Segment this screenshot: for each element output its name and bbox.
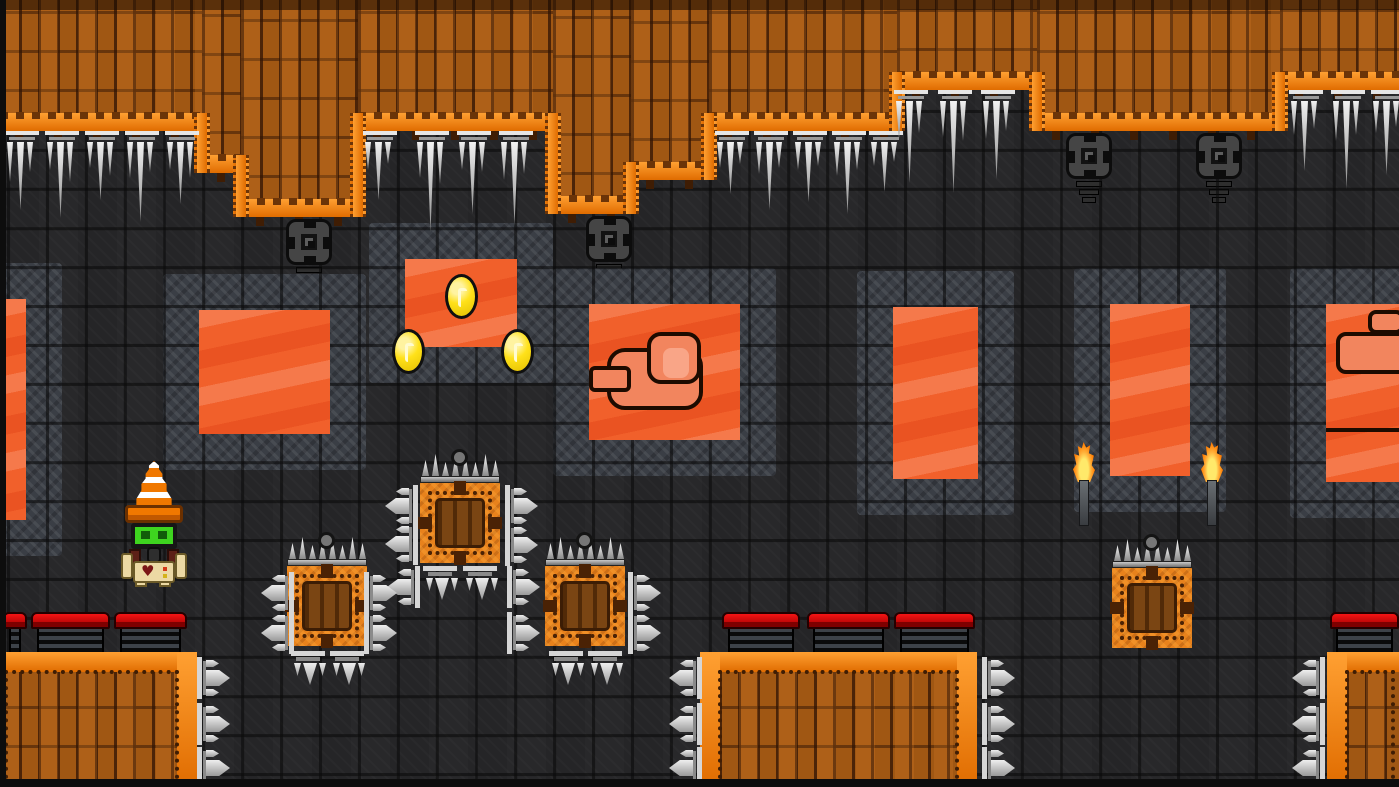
- ceiling-dirt-segment: [897, 0, 1037, 90]
- icicle-rail: [836, 137, 862, 140]
- spike: [319, 663, 326, 676]
- crusher-bellows: [9, 629, 21, 652]
- spike-crown: [545, 531, 625, 566]
- turret-notch: [588, 234, 595, 246]
- lava-rock-highlight: [663, 348, 689, 378]
- lava-window: [199, 310, 330, 434]
- spike-block-stub: [1110, 602, 1124, 614]
- spike: [206, 735, 219, 742]
- crusher-cap: [3, 612, 27, 629]
- spike: [385, 536, 409, 552]
- icicle: [107, 142, 113, 176]
- dirt-platform: [700, 652, 977, 787]
- crusher-cap: [807, 612, 890, 629]
- spike: [1184, 545, 1191, 561]
- spike: [991, 760, 1015, 776]
- icicle: [469, 142, 476, 214]
- spike-crown: [420, 448, 500, 483]
- spike: [482, 454, 489, 476]
- turret-notch: [604, 253, 616, 260]
- icicle-cluster: [893, 90, 931, 184]
- spike-rail: [982, 703, 987, 745]
- spike: [1303, 706, 1316, 713]
- icicle-cluster: [498, 131, 536, 227]
- turret-notch: [604, 218, 616, 225]
- spike-block-stub: [418, 517, 432, 529]
- icicle: [815, 142, 821, 166]
- down-spike-launcher: [289, 651, 329, 689]
- player-cone-hat: [133, 461, 175, 507]
- icicle-cluster: [124, 131, 162, 223]
- ceiling-lava-trim: [1037, 113, 1280, 131]
- lava-rock-blob: [1368, 310, 1399, 334]
- icicle: [1311, 101, 1317, 129]
- icicle: [459, 142, 465, 170]
- icicle-cluster: [84, 131, 122, 201]
- spike: [637, 575, 650, 582]
- icicle-rail: [461, 137, 487, 140]
- spike: [680, 689, 693, 696]
- lava-rock-blob: [647, 332, 701, 384]
- ceiling-dirt-segment: [241, 0, 358, 217]
- lava-rock-blob: [1336, 332, 1399, 374]
- spike-block-stub: [1146, 636, 1158, 650]
- spike: [669, 670, 693, 686]
- turret-eye: [1088, 155, 1095, 162]
- spike: [206, 689, 219, 696]
- spike: [398, 598, 411, 605]
- spike: [680, 750, 693, 757]
- icicle-rail: [367, 137, 393, 140]
- spike-block-stub: [321, 564, 333, 578]
- spike-block-stub: [579, 564, 591, 578]
- wall-spike-launcher: [260, 610, 294, 656]
- icicle: [1383, 101, 1390, 175]
- spike: [1164, 547, 1171, 561]
- turret-notch: [1084, 170, 1096, 177]
- icicle: [375, 142, 382, 200]
- icicle-rail: [165, 131, 199, 135]
- spike-rail: [370, 576, 373, 610]
- piston-crusher: [807, 612, 890, 652]
- spike: [272, 644, 285, 651]
- coin[interactable]: [392, 329, 425, 374]
- crusher-bellows: [1336, 629, 1393, 652]
- spike: [1292, 716, 1316, 732]
- spike-rail: [468, 572, 492, 576]
- ceiling-lava-trim: [241, 199, 358, 217]
- player-arm: [121, 553, 133, 579]
- dirt-core-border: [718, 670, 959, 787]
- wall-spike-launcher: [507, 610, 541, 656]
- spike-rail: [628, 572, 633, 614]
- crusher-bellows: [37, 629, 104, 652]
- icicle: [87, 142, 93, 168]
- spike: [206, 706, 219, 713]
- spike-block-crate: [302, 581, 352, 631]
- icicle-rail: [1335, 96, 1361, 99]
- spike-rail: [593, 657, 617, 661]
- spike-crown: [1112, 533, 1192, 568]
- spike: [991, 660, 1004, 667]
- spike: [396, 488, 409, 495]
- crusher-cap: [894, 612, 975, 629]
- icicle: [896, 101, 902, 139]
- spike-rail: [364, 612, 369, 654]
- icicle-rail: [129, 137, 155, 140]
- spike-rail: [549, 651, 583, 656]
- icicle-cluster: [456, 131, 494, 215]
- coin-slot-mark: [405, 343, 414, 362]
- spike: [516, 625, 540, 641]
- spike-rail: [289, 572, 294, 614]
- spike: [991, 750, 1004, 757]
- spike: [432, 454, 439, 476]
- spike: [991, 689, 1004, 696]
- icicle: [511, 142, 518, 226]
- spike-block-stub: [454, 551, 466, 565]
- icicle-rail: [938, 90, 972, 94]
- icicle: [1003, 101, 1009, 131]
- icicle: [795, 142, 801, 170]
- spike: [373, 585, 397, 601]
- spike-block: [1112, 568, 1192, 648]
- turret-body: [586, 216, 632, 262]
- spike-rail: [1320, 657, 1325, 699]
- player-character[interactable]: ♥: [121, 461, 187, 587]
- piston-crusher: [31, 612, 110, 652]
- spike-block: [545, 566, 625, 646]
- icicle-rail: [832, 131, 866, 135]
- spike-rail: [513, 570, 516, 604]
- spike: [561, 663, 575, 685]
- piston-crusher: [1330, 612, 1399, 652]
- spike: [1303, 689, 1316, 696]
- spike-rail: [1320, 703, 1325, 745]
- piston-crusher: [722, 612, 800, 652]
- icicle: [834, 142, 840, 176]
- spike: [373, 644, 386, 651]
- down-spike-launcher: [328, 651, 368, 689]
- spike: [680, 735, 693, 742]
- piston-crusher: [114, 612, 187, 652]
- spike: [342, 663, 356, 685]
- spike: [396, 555, 409, 562]
- spike: [600, 663, 614, 685]
- lava-window: [589, 304, 740, 440]
- spike: [516, 579, 540, 595]
- spike-rail: [413, 523, 418, 565]
- spike: [442, 462, 449, 476]
- spike: [299, 537, 306, 559]
- ceiling-dirt-segment: [631, 0, 709, 180]
- turret-body: [1066, 133, 1112, 179]
- spike: [591, 663, 598, 676]
- lava-window: [893, 307, 978, 479]
- dirt-lava-trim-left: [700, 652, 720, 787]
- ceiling-lava-trim: [553, 196, 631, 214]
- icicle-cluster: [937, 90, 975, 194]
- spike: [1174, 539, 1181, 561]
- spike: [637, 625, 661, 641]
- spike-block-stub: [543, 600, 557, 612]
- wall-spike-launcher: [982, 655, 1016, 701]
- icicle: [737, 142, 743, 164]
- icicle-rail: [1289, 90, 1323, 94]
- spike-rail: [697, 703, 702, 745]
- icicle: [805, 142, 812, 202]
- turret-barrel-segment: [1079, 189, 1099, 195]
- spike: [206, 760, 230, 776]
- coin[interactable]: [501, 329, 534, 374]
- turret-notch: [1103, 151, 1110, 163]
- spike-rail: [511, 489, 514, 523]
- top-edge-shade: [0, 0, 1399, 10]
- spike: [514, 488, 527, 495]
- icicle: [756, 142, 762, 174]
- spike-rail: [588, 651, 622, 656]
- spike-rail: [554, 657, 578, 661]
- player-foot: [135, 581, 147, 587]
- lava-rock-blob: [589, 366, 631, 392]
- icicle: [67, 142, 73, 182]
- spike-rail: [634, 576, 637, 610]
- ceiling-lava-step: [623, 162, 639, 214]
- turret-notch: [304, 256, 316, 263]
- icicle-rail: [942, 96, 968, 99]
- turret-body: [1196, 133, 1242, 179]
- turret-notch: [1068, 151, 1075, 163]
- icicle-rail: [1371, 90, 1399, 94]
- icicle: [940, 101, 946, 137]
- turret-body: [286, 219, 332, 265]
- turret-barrel-segment: [1209, 189, 1229, 195]
- spike-rail: [285, 616, 288, 650]
- spike: [597, 545, 604, 559]
- wall-spike-launcher: [197, 655, 231, 701]
- spike: [398, 569, 411, 576]
- player-heart-emblem: ♥: [141, 563, 155, 579]
- icicle: [950, 101, 957, 193]
- turret-notch: [1233, 151, 1240, 163]
- spike-rail: [370, 616, 373, 650]
- icicle-cluster: [1370, 90, 1399, 176]
- dirt-lava-trim-right: [177, 652, 197, 787]
- icicle-cluster: [753, 131, 791, 211]
- spike-rail: [203, 661, 206, 695]
- icicle: [983, 101, 989, 139]
- icicle-rail: [719, 137, 745, 140]
- dirt-platform: [1327, 652, 1399, 787]
- player-torso: ♥: [133, 561, 175, 583]
- player-badge-dot: [163, 567, 167, 571]
- icicle: [727, 142, 734, 194]
- spike: [1303, 750, 1316, 757]
- crusher-bellows: [728, 629, 794, 652]
- ceiling-dirt-segment: [553, 0, 631, 214]
- ceiling-lava-step: [1272, 72, 1288, 131]
- spike: [1124, 539, 1131, 561]
- torch: [1072, 442, 1096, 526]
- spike: [680, 660, 693, 667]
- icicle: [417, 142, 423, 178]
- coin[interactable]: [445, 274, 478, 319]
- spike-rail: [197, 703, 202, 745]
- icicle-rail: [898, 96, 924, 99]
- spike-block-stub: [613, 600, 627, 612]
- icicle-rail: [457, 131, 491, 135]
- wall-spike-launcher: [364, 610, 398, 656]
- spike: [426, 578, 433, 591]
- ceiling-dirt-segment: [1280, 0, 1399, 90]
- crusher-cap: [114, 612, 187, 629]
- icicle-rail: [1375, 96, 1399, 99]
- spike: [309, 545, 316, 559]
- spike-rail: [415, 566, 420, 608]
- icicle-rail: [715, 131, 749, 135]
- wall-spike-launcher: [1291, 655, 1325, 701]
- icicle: [385, 142, 391, 164]
- turret-barrel-segment: [296, 267, 322, 273]
- down-spike-launcher: [461, 566, 501, 604]
- ceiling-lava-trim: [709, 113, 897, 131]
- icicle-cluster: [980, 90, 1018, 180]
- spike: [373, 615, 386, 622]
- spike-crown-ornament: [576, 532, 593, 549]
- spike-rail: [197, 657, 202, 699]
- left-screen-edge: [0, 0, 6, 787]
- icicle: [437, 142, 443, 184]
- spike: [491, 578, 498, 591]
- dirt-lava-trim-right: [957, 652, 977, 787]
- wall-spike-launcher: [505, 522, 539, 568]
- spike-rail: [364, 572, 369, 614]
- game-viewport[interactable]: ♥: [0, 0, 1399, 787]
- icicle: [960, 101, 966, 141]
- spike-rail: [423, 566, 457, 571]
- wall-spike-launcher: [1291, 701, 1325, 747]
- spike-rail: [1316, 661, 1319, 695]
- icicle: [365, 142, 371, 170]
- icicle: [1291, 101, 1297, 135]
- torch-handle: [1207, 480, 1217, 526]
- turret-notch: [323, 237, 330, 249]
- spike-rail: [988, 661, 991, 695]
- icicle-rail: [5, 131, 39, 135]
- spike: [272, 615, 285, 622]
- dirt-core-border: [4, 670, 179, 787]
- dirt-lava-trim-left: [1327, 652, 1347, 787]
- icicle-rail: [415, 131, 449, 135]
- spike-rail: [507, 612, 512, 654]
- spike-rail: [291, 651, 325, 656]
- icicle-rail: [85, 131, 119, 135]
- ceiling-lava-step: [1029, 72, 1045, 131]
- spike-rail: [628, 612, 633, 654]
- icicle-rail: [419, 137, 445, 140]
- icicle-cluster: [831, 131, 869, 215]
- icicle: [776, 142, 782, 168]
- turret-barrel-segment: [1212, 197, 1226, 203]
- player-badge-dot: [163, 574, 167, 578]
- lava-window: [1110, 304, 1190, 476]
- icicle: [521, 142, 527, 174]
- spike: [557, 537, 564, 559]
- spike-crown-ornament: [451, 449, 468, 466]
- spike: [272, 575, 285, 582]
- player-arm: [175, 553, 187, 579]
- icicle: [97, 142, 104, 200]
- spike: [303, 663, 317, 685]
- spike-rail: [634, 616, 637, 650]
- spike: [991, 670, 1015, 686]
- torch-flame: [1073, 442, 1095, 482]
- piston-crusher: [894, 612, 975, 652]
- crusher-bellows: [813, 629, 884, 652]
- down-spike-launcher: [421, 566, 461, 604]
- spike-rail: [409, 489, 412, 523]
- icicle-rail: [125, 131, 159, 135]
- icicle-rail: [363, 131, 397, 135]
- spike: [1292, 670, 1316, 686]
- spike: [373, 575, 386, 582]
- spike: [358, 663, 365, 676]
- ceiling-lava-trim: [631, 162, 709, 180]
- icicle: [1353, 101, 1359, 135]
- icicle: [47, 142, 53, 170]
- torch-flame: [1201, 442, 1223, 482]
- icicle-rail: [754, 131, 788, 135]
- spike: [206, 716, 230, 732]
- turret-notch: [288, 237, 295, 249]
- spike-crown: [287, 531, 367, 566]
- spike: [1114, 545, 1121, 561]
- icicle-rail: [89, 137, 115, 140]
- icicle-rail: [49, 137, 75, 140]
- player-cone-brim: [125, 505, 183, 523]
- spike: [514, 537, 538, 553]
- spike-rail: [982, 657, 987, 699]
- ceiling-lava-step: [233, 155, 249, 217]
- icicle: [127, 142, 133, 178]
- wall-spike-launcher: [668, 701, 702, 747]
- spike: [577, 663, 584, 676]
- spike: [333, 663, 340, 676]
- spike: [567, 545, 574, 559]
- spike: [1292, 760, 1316, 776]
- spike-block-crate: [435, 498, 485, 548]
- spike-rail: [289, 612, 294, 654]
- icicle-rail: [169, 137, 195, 140]
- turret-notch: [1198, 151, 1205, 163]
- icicle-cluster: [792, 131, 830, 203]
- spike-rail: [203, 707, 206, 741]
- ceiling-dirt-segment: [358, 0, 553, 131]
- spike: [991, 716, 1015, 732]
- wall-spike-launcher: [384, 521, 418, 567]
- down-spike-launcher: [586, 651, 626, 689]
- icicle-rail: [894, 90, 928, 94]
- bottom-screen-edge: [0, 779, 1399, 787]
- spike-crown-ornament: [318, 532, 335, 549]
- spike: [669, 716, 693, 732]
- spike: [294, 663, 301, 676]
- spike: [289, 543, 296, 559]
- spike-rail: [507, 566, 512, 608]
- turret-notch: [1084, 135, 1096, 142]
- dirt-platform: [0, 652, 197, 787]
- spike-rail: [988, 707, 991, 741]
